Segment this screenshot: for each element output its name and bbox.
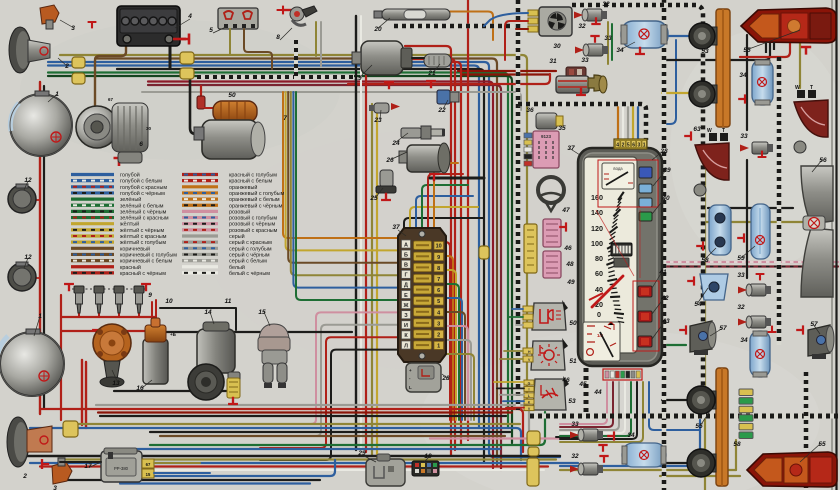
svg-text:5: 5 bbox=[627, 143, 630, 149]
svg-text:41: 41 bbox=[658, 269, 667, 276]
svg-text:15: 15 bbox=[146, 472, 151, 477]
svg-text:голубой с красным: голубой с красным bbox=[120, 184, 167, 191]
svg-text:34: 34 bbox=[627, 432, 635, 439]
svg-text:+Б: +Б bbox=[170, 332, 177, 337]
svg-text:8: 8 bbox=[276, 34, 280, 41]
svg-text:33: 33 bbox=[604, 35, 612, 42]
svg-text:зелёный с красным: зелёный с красным bbox=[120, 215, 169, 222]
svg-text:33: 33 bbox=[581, 57, 589, 64]
svg-text:голубой с чёрным: голубой с чёрным bbox=[120, 190, 165, 197]
svg-text:120: 120 bbox=[591, 224, 603, 233]
svg-text:49: 49 bbox=[566, 279, 575, 286]
svg-text:18: 18 bbox=[424, 453, 432, 460]
svg-text:Л: Л bbox=[404, 343, 408, 349]
svg-text:В: В bbox=[404, 263, 408, 269]
svg-text:10: 10 bbox=[436, 244, 442, 250]
svg-text:63: 63 bbox=[693, 126, 701, 133]
svg-text:5: 5 bbox=[209, 27, 213, 34]
svg-text:5: 5 bbox=[437, 299, 440, 305]
svg-text:белый: белый bbox=[229, 264, 245, 271]
svg-text:Е: Е bbox=[404, 293, 408, 299]
svg-text:44: 44 bbox=[593, 389, 602, 396]
svg-text:9: 9 bbox=[148, 292, 152, 299]
svg-text:красный с чёрным: красный с чёрным bbox=[120, 270, 166, 277]
svg-text:30: 30 bbox=[146, 126, 152, 131]
svg-text:I: I bbox=[529, 388, 530, 392]
svg-text:голубой с белым: голубой с белым bbox=[120, 178, 162, 185]
svg-text:И: И bbox=[404, 323, 408, 329]
svg-text:80: 80 bbox=[595, 254, 603, 263]
svg-text:24: 24 bbox=[391, 140, 400, 147]
svg-text:47: 47 bbox=[561, 207, 570, 214]
svg-text:W: W bbox=[707, 128, 712, 134]
svg-text:коричневый: коричневый bbox=[120, 245, 150, 252]
svg-text:57: 57 bbox=[719, 325, 727, 332]
svg-text:2: 2 bbox=[22, 473, 27, 480]
svg-text:20: 20 bbox=[373, 26, 382, 33]
svg-text:W: W bbox=[795, 85, 800, 91]
svg-text:37: 37 bbox=[392, 224, 400, 231]
svg-text:9123: 9123 bbox=[541, 134, 552, 139]
svg-text:28: 28 bbox=[441, 375, 450, 382]
svg-text:16: 16 bbox=[136, 385, 144, 392]
svg-text:коричневый с белым: коричневый с белым bbox=[120, 258, 173, 265]
svg-text:вода: вода bbox=[613, 166, 623, 171]
svg-text:красный с белым: красный с белым bbox=[229, 178, 272, 185]
svg-text:L: L bbox=[409, 385, 412, 390]
svg-text:зелёный с белым: зелёный с белым bbox=[120, 202, 164, 209]
svg-text:36: 36 bbox=[526, 107, 534, 114]
svg-text:58: 58 bbox=[733, 441, 741, 448]
svg-text:жёлтый: жёлтый bbox=[120, 221, 139, 228]
svg-text:G: G bbox=[528, 381, 531, 385]
svg-text:57: 57 bbox=[810, 321, 818, 328]
svg-text:9: 9 bbox=[437, 255, 440, 261]
svg-text:оранжевый с голубым: оранжевый с голубым bbox=[229, 190, 285, 197]
svg-text:48: 48 bbox=[565, 261, 574, 268]
svg-text:красный с голубым: красный с голубым bbox=[229, 172, 277, 179]
svg-text:З: З bbox=[404, 313, 408, 319]
svg-text:+: + bbox=[409, 368, 412, 373]
svg-text:6: 6 bbox=[632, 143, 635, 149]
svg-text:34: 34 bbox=[616, 47, 624, 54]
svg-text:160: 160 bbox=[591, 193, 603, 202]
svg-text:46: 46 bbox=[561, 377, 570, 384]
svg-text:33: 33 bbox=[737, 272, 745, 279]
svg-text:59: 59 bbox=[737, 255, 745, 262]
svg-text:56: 56 bbox=[819, 157, 827, 164]
svg-text:1: 1 bbox=[643, 143, 646, 149]
svg-text:2: 2 bbox=[622, 143, 625, 149]
svg-text:35: 35 bbox=[558, 125, 566, 132]
svg-text:6: 6 bbox=[139, 141, 143, 148]
svg-text:6: 6 bbox=[437, 288, 440, 294]
svg-text:15: 15 bbox=[258, 309, 266, 316]
svg-text:Д: Д bbox=[404, 283, 408, 289]
svg-text:32: 32 bbox=[571, 453, 579, 460]
svg-text:оранжевый: оранжевый bbox=[229, 184, 257, 191]
svg-text:34: 34 bbox=[739, 72, 747, 79]
svg-text:серый с красным: серый с красным bbox=[229, 239, 272, 246]
svg-text:34: 34 bbox=[740, 337, 748, 344]
svg-text:45: 45 bbox=[578, 381, 587, 388]
svg-text:Б: Б bbox=[404, 252, 408, 258]
svg-text:серый с белым: серый с белым bbox=[229, 258, 267, 265]
svg-text:серый: серый bbox=[229, 233, 245, 240]
svg-text:7: 7 bbox=[283, 115, 287, 122]
svg-text:Ж: Ж bbox=[403, 303, 409, 309]
svg-text:1: 1 bbox=[437, 344, 440, 350]
svg-text:розовый: розовый bbox=[229, 208, 250, 215]
svg-text:22: 22 bbox=[437, 107, 446, 114]
svg-text:оранжевый с чёрным: оранжевый с чёрным bbox=[229, 202, 283, 209]
svg-text:3: 3 bbox=[437, 321, 440, 327]
svg-text:голубой: голубой bbox=[120, 172, 140, 179]
svg-text:красный: красный bbox=[120, 264, 141, 271]
svg-text:67: 67 bbox=[108, 97, 114, 102]
svg-text:зелёный с чёрным: зелёный с чёрным bbox=[120, 208, 167, 215]
svg-text:жёлтый с чёрным: жёлтый с чёрным bbox=[120, 227, 164, 234]
svg-text:31: 31 bbox=[549, 58, 557, 65]
svg-text:розовый с красным: розовый с красным bbox=[229, 227, 278, 234]
svg-text:67: 67 bbox=[146, 462, 151, 467]
svg-text:0: 0 bbox=[597, 310, 601, 319]
svg-text:2: 2 bbox=[437, 333, 440, 339]
svg-text:3: 3 bbox=[53, 485, 57, 490]
svg-text:T: T bbox=[810, 85, 813, 91]
svg-text:53: 53 bbox=[568, 398, 576, 405]
svg-text:33: 33 bbox=[740, 133, 748, 140]
svg-text:А: А bbox=[404, 242, 408, 248]
svg-text:3: 3 bbox=[71, 25, 75, 32]
svg-text:12: 12 bbox=[24, 254, 32, 261]
svg-text:зелёный: зелёный bbox=[120, 196, 141, 203]
svg-text:50: 50 bbox=[228, 92, 236, 99]
svg-text:РР-380: РР-380 bbox=[114, 466, 129, 471]
svg-text:розовый с голубым: розовый с голубым bbox=[229, 215, 277, 222]
svg-text:1: 1 bbox=[55, 91, 59, 98]
svg-text:26: 26 bbox=[385, 157, 394, 164]
svg-text:10: 10 bbox=[165, 298, 173, 305]
svg-text:23: 23 bbox=[373, 117, 382, 124]
svg-text:100: 100 bbox=[591, 239, 603, 248]
svg-text:белый с чёрным: белый с чёрным bbox=[229, 270, 270, 277]
svg-text:30: 30 bbox=[553, 43, 561, 50]
svg-text:55: 55 bbox=[695, 423, 703, 430]
svg-text:12: 12 bbox=[24, 177, 32, 184]
svg-text:60: 60 bbox=[595, 269, 603, 278]
svg-text:оранжевый с белым: оранжевый с белым bbox=[229, 196, 280, 203]
svg-text:T: T bbox=[722, 128, 725, 134]
svg-text:серый с чёрным: серый с чёрным bbox=[229, 251, 270, 258]
svg-text:жёлтый с красным: жёлтый с красным bbox=[120, 233, 167, 240]
svg-text:50: 50 bbox=[569, 320, 577, 327]
svg-text:розовый с чёрным: розовый с чёрным bbox=[229, 221, 275, 228]
svg-text:58: 58 bbox=[701, 257, 709, 264]
svg-text:29: 29 bbox=[357, 450, 366, 457]
svg-text:38: 38 bbox=[660, 148, 668, 155]
svg-text:32: 32 bbox=[578, 23, 586, 30]
svg-text:4: 4 bbox=[616, 143, 619, 149]
svg-text:коричневый с голубым: коричневый с голубым bbox=[120, 251, 177, 258]
svg-text:7: 7 bbox=[437, 277, 440, 283]
svg-text:13: 13 bbox=[112, 380, 120, 387]
svg-text:32: 32 bbox=[602, 1, 610, 8]
svg-text:46: 46 bbox=[563, 245, 572, 252]
svg-text:33: 33 bbox=[571, 421, 579, 428]
svg-text:11: 11 bbox=[225, 298, 232, 305]
svg-text:32: 32 bbox=[737, 304, 745, 311]
svg-text:серый с голубым: серый с голубым bbox=[229, 245, 272, 252]
svg-text:55: 55 bbox=[743, 47, 751, 54]
svg-text:39: 39 bbox=[663, 167, 671, 174]
svg-text:3: 3 bbox=[638, 143, 641, 149]
svg-text:8: 8 bbox=[437, 266, 440, 272]
svg-text:жёлтый с голубым: жёлтый с голубым bbox=[120, 239, 166, 246]
svg-text:51: 51 bbox=[569, 358, 577, 365]
